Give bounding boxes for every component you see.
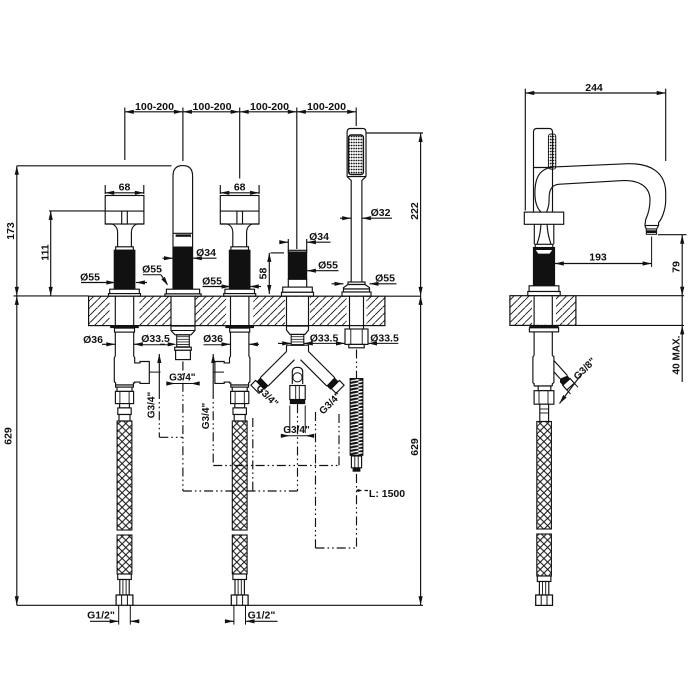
svg-text:629: 629 bbox=[409, 438, 421, 456]
svg-text:Ø55: Ø55 bbox=[202, 275, 222, 287]
svg-text:100-200: 100-200 bbox=[135, 101, 174, 113]
svg-text:Ø55: Ø55 bbox=[375, 272, 395, 284]
svg-text:68: 68 bbox=[119, 182, 131, 194]
svg-text:Ø55: Ø55 bbox=[142, 264, 162, 276]
svg-text:Ø55: Ø55 bbox=[80, 271, 100, 283]
svg-text:173: 173 bbox=[5, 222, 17, 240]
svg-text:Ø33.5: Ø33.5 bbox=[310, 333, 339, 345]
svg-text:Ø34: Ø34 bbox=[196, 247, 216, 259]
svg-text:Ø33.5: Ø33.5 bbox=[370, 333, 399, 345]
svg-text:Ø36: Ø36 bbox=[83, 334, 103, 346]
svg-text:100-200: 100-200 bbox=[193, 101, 232, 113]
svg-text:G1/2": G1/2" bbox=[248, 610, 276, 622]
svg-text:Ø55: Ø55 bbox=[318, 260, 338, 272]
svg-text:G3/4": G3/4" bbox=[201, 403, 212, 430]
svg-text:58: 58 bbox=[258, 268, 270, 280]
svg-text:222: 222 bbox=[409, 202, 421, 220]
svg-text:Ø34: Ø34 bbox=[309, 231, 329, 243]
svg-text:G3/4": G3/4" bbox=[283, 425, 310, 436]
svg-text:G1/2": G1/2" bbox=[87, 610, 115, 622]
svg-text:L: 1500: L: 1500 bbox=[369, 488, 405, 500]
svg-text:111: 111 bbox=[40, 244, 52, 261]
svg-text:40 MAX.: 40 MAX. bbox=[672, 335, 683, 374]
svg-text:79: 79 bbox=[670, 261, 682, 273]
svg-text:Ø33.5: Ø33.5 bbox=[141, 333, 170, 345]
svg-text:68: 68 bbox=[234, 182, 246, 194]
svg-text:Ø32: Ø32 bbox=[371, 207, 391, 219]
svg-text:Ø36: Ø36 bbox=[203, 333, 223, 345]
svg-text:100-200: 100-200 bbox=[250, 101, 289, 113]
svg-text:244: 244 bbox=[585, 82, 603, 94]
svg-text:193: 193 bbox=[589, 252, 607, 264]
svg-text:G3/4": G3/4" bbox=[147, 392, 158, 419]
svg-text:100-200: 100-200 bbox=[307, 101, 346, 113]
svg-text:629: 629 bbox=[3, 427, 15, 445]
